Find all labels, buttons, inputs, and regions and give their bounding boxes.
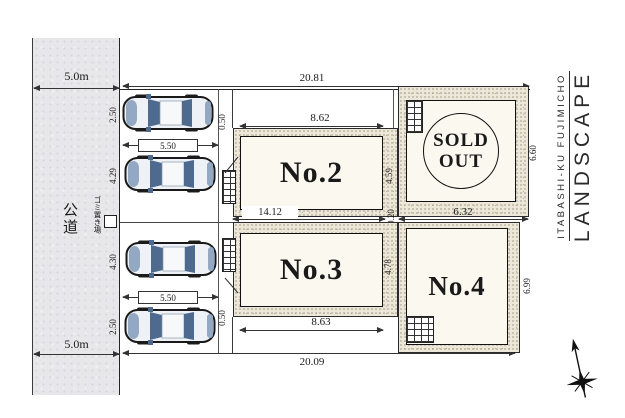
title-large: LANDSCAPE [571, 70, 595, 242]
title-block: ITABASHI-KU FUJIMICHO LANDSCAPE [556, 71, 608, 241]
title-small: ITABASHI-KU FUJIMICHO [556, 73, 567, 239]
site-plan-canvas: 公道 5.0m 5.0m 2.50 4.29 4.30 2.50 20.81 2… [0, 0, 625, 418]
car-icon [125, 238, 217, 280]
title-rule [569, 71, 570, 241]
car-icon [124, 305, 216, 347]
diagonal-lines-overlay [0, 0, 625, 418]
car-icon [122, 93, 214, 133]
car-icon [124, 154, 216, 194]
